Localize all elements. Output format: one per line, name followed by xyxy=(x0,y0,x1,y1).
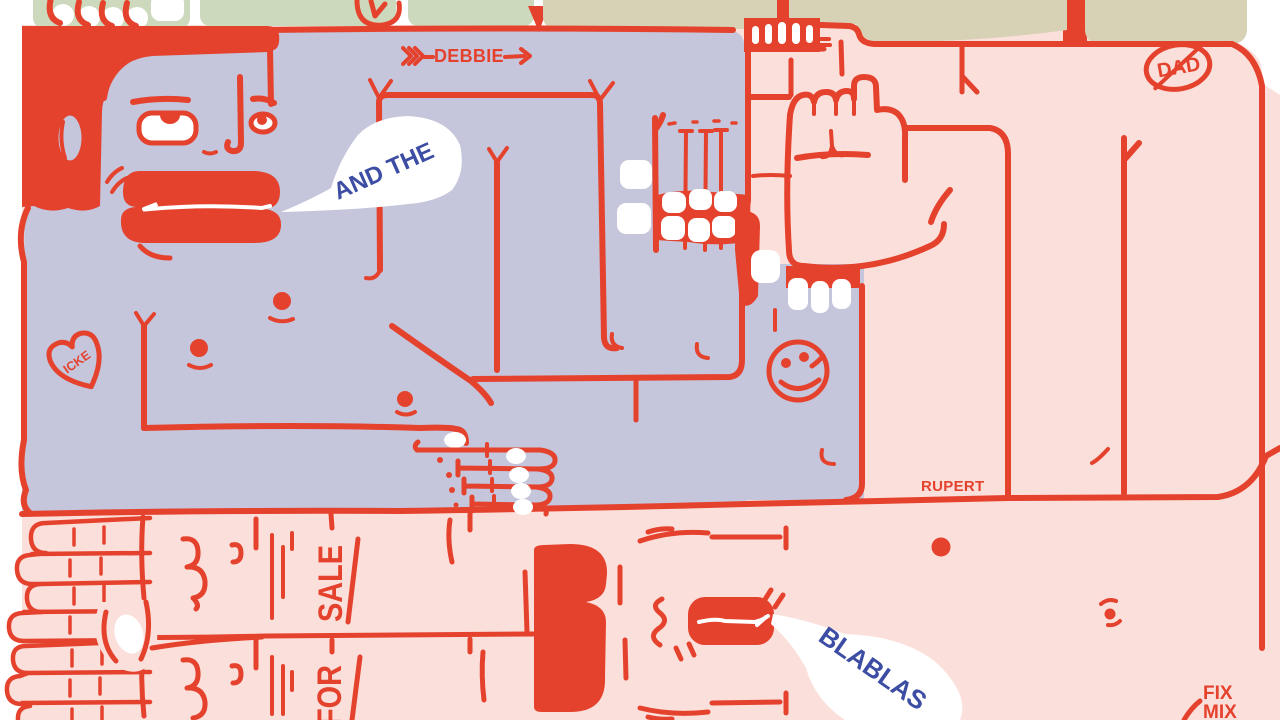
svg-text:RUPERT: RUPERT xyxy=(921,478,984,495)
svg-text:DEBBIE: DEBBIE xyxy=(434,46,504,66)
svg-text:SALE: SALE xyxy=(311,545,350,622)
svg-text:FIX: FIX xyxy=(1203,683,1233,704)
svg-text:FOR: FOR xyxy=(310,665,349,720)
svg-text:MIX: MIX xyxy=(1203,702,1237,720)
